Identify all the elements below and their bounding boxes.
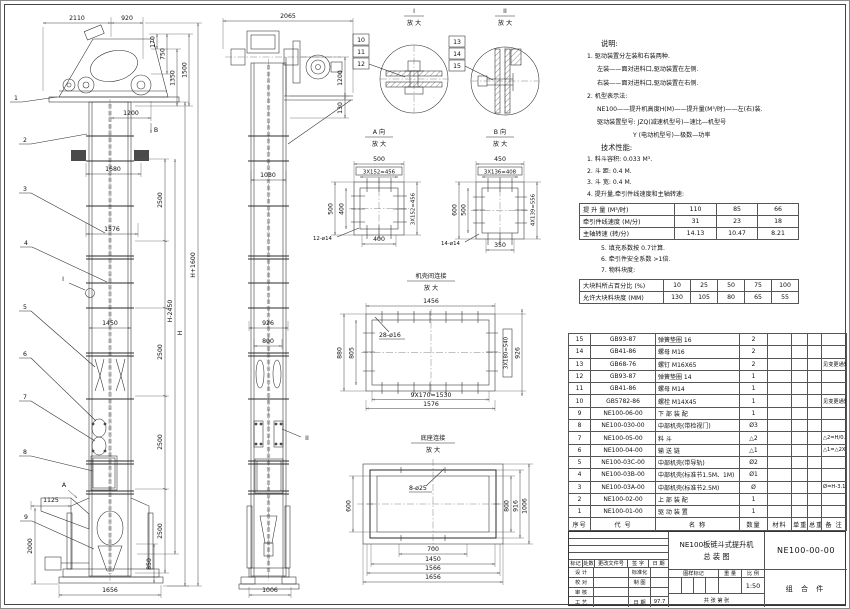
lift-table-label: 牵引件线速度 (M/分)	[580, 216, 675, 228]
stamp-box	[706, 578, 719, 594]
bom-cell	[822, 493, 847, 505]
title-block: 标记 处数 更改文件号 签 字 日 期 设 计 标准化 校 对 制 图 审 核 …	[568, 531, 846, 606]
bom-cell: 1	[740, 506, 768, 518]
base-r800: 800	[504, 500, 511, 512]
audit-extra	[629, 588, 651, 597]
bom-cell: 弹簧垫圈 16	[656, 334, 740, 346]
scale-value: 1:50	[742, 578, 765, 594]
balloon-1: 1	[14, 95, 18, 102]
bom-cell	[808, 506, 822, 518]
base-r1006: 1006	[522, 498, 529, 514]
stamp-label: 图样标记	[669, 570, 719, 578]
bom-cell	[768, 383, 792, 395]
lump-table-row: 大块料所占百分比 (%)10255075100	[580, 280, 799, 292]
tech-lines2: 5. 填充系数按 0.7计算.6. 牵引件安全系数 >1倍.7. 物料块度:	[601, 244, 850, 276]
bom-cell	[768, 358, 792, 370]
bom-cell: △2=H/0.2+5.75	[822, 432, 847, 444]
process-sign	[594, 597, 629, 607]
bom-cell: GB41-86	[591, 346, 656, 358]
dim-2000: 2000	[27, 538, 34, 554]
bom-cell: 2	[740, 358, 768, 370]
lift-table-row: 提 升 量 (M³/时)1108566	[580, 204, 799, 216]
bom-cell	[768, 493, 792, 505]
bom-row: 9NE100-06-00下 部 装 配1	[569, 407, 847, 419]
balloon-5: 5	[23, 304, 27, 311]
base-b1450: 1450	[425, 556, 441, 563]
bom-row: 4NE100-03B-00中部机壳(标准节1.5M、1M)Ø1	[569, 469, 847, 481]
bom-cell	[808, 456, 822, 468]
bom-cell	[768, 481, 792, 493]
bom-row: 10GB5782-86螺栓 M14X451见变更通知单	[569, 395, 847, 407]
bom-cell: 螺母 M14	[656, 383, 740, 395]
dim-800: 800	[262, 338, 274, 345]
dim-1680: 1680	[105, 166, 121, 173]
note-line: 驱动装置型号: JZQ(减速机型号)—速比—机型号	[597, 116, 849, 129]
bom-cell: 料 斗	[656, 432, 740, 444]
lump-table-value: 50	[718, 280, 745, 292]
bom-row: 12GB93-87弹簧垫圈 141	[569, 370, 847, 382]
drawing-number: NE100-00-00	[765, 532, 847, 570]
weight-value	[719, 578, 742, 594]
detail-i-title: I	[413, 8, 415, 15]
view-a-left2: 400	[339, 203, 346, 215]
lump-table-label: 允许大块料块度 (MM)	[580, 292, 664, 304]
bom-cell	[808, 420, 822, 432]
lump-table-value: 55	[772, 292, 799, 304]
view-a-sub: 放 大	[372, 140, 386, 148]
lift-table-value: 8.21	[758, 228, 799, 240]
detail-ii-sub: 放 大	[498, 19, 512, 27]
bom-cell: GB5782-86	[591, 395, 656, 407]
bom-cell: 1	[740, 370, 768, 382]
side-view: 2065 1200 130 1030 926 800 1006 II	[223, 13, 353, 598]
tech-line: 1. 料斗容积: 0.033 M³.	[587, 154, 849, 166]
bom-cell	[792, 469, 808, 481]
sheet-count: 共 张 第 张	[669, 594, 765, 607]
view-b-top2: 3X136=408	[484, 170, 517, 176]
bom-row: 5NE100-03C-00中部机壳(带导轨)Ø2	[569, 456, 847, 468]
bom-cell: NE100-03C-00	[591, 456, 656, 468]
dim-2110: 2110	[69, 15, 85, 22]
note-line: 左装——面对进料口,驱动装置在左侧.	[597, 63, 849, 76]
bom-cell	[792, 346, 808, 358]
mark-label: 标记	[569, 560, 583, 568]
bom-row: 15GB93-87弹簧垫圈 162	[569, 334, 847, 346]
view-a-holes: 12-ø14	[313, 236, 333, 242]
bom-cell: 驱 动 装 置	[656, 506, 740, 518]
base-holes: 8-ø25	[409, 485, 427, 492]
joint-right: 926	[515, 347, 522, 359]
bom-cell: Ø1	[740, 469, 768, 481]
bom-cell: Ø2	[740, 456, 768, 468]
bom-cell	[792, 456, 808, 468]
revision-row	[569, 532, 669, 539]
dim-1656: 1656	[102, 587, 118, 594]
view-a-left: 500	[328, 203, 335, 215]
bom-row: 13GB68-76螺钉 M16X652见变更通知单	[569, 358, 847, 370]
audit-sign	[594, 588, 629, 597]
bom-cell	[768, 346, 792, 358]
tech-line: 7. 物料块度:	[601, 266, 850, 277]
bom-cell	[808, 407, 822, 419]
view-a-title: A 向	[373, 128, 385, 136]
bom-row: 2NE100-02-00上 部 装 配1	[569, 493, 847, 505]
base-b1566: 1566	[425, 565, 441, 572]
bom-cell: 3	[569, 481, 591, 493]
dim-2500-d: 2500	[157, 523, 164, 539]
dim-h-plus: H+1600	[190, 252, 197, 278]
bom-cell	[808, 481, 822, 493]
marker-a: A	[62, 482, 67, 489]
bom-header: 代 号	[591, 518, 656, 530]
bom-row: 6NE100-04-00输 送 链△1△1=△2X4	[569, 444, 847, 456]
bom-cell	[792, 432, 808, 444]
balloon-2: 2	[23, 137, 27, 144]
bom-cell	[768, 456, 792, 468]
dim-926: 926	[262, 320, 274, 327]
bom-cell: 13	[569, 358, 591, 370]
dim-170: 170	[150, 36, 157, 48]
lump-table-value: 100	[772, 280, 799, 292]
bom-row: 1NE100-01-00驱 动 装 置1	[569, 506, 847, 518]
part-type: 组 合 件	[765, 570, 847, 607]
change-doc-label: 更改文件号	[595, 560, 628, 568]
lift-table-value: 66	[758, 204, 799, 216]
view-a-right: 3X152=456	[411, 192, 417, 225]
lift-table-value: 85	[717, 204, 758, 216]
base-left: 600	[346, 500, 353, 512]
bom-cell: 中部机壳(标准节2.5M)	[656, 481, 740, 493]
bom-cell: 10	[569, 395, 591, 407]
bom-cell	[792, 358, 808, 370]
audit-label: 审 核	[569, 588, 594, 597]
dim-h: H	[177, 330, 184, 335]
bom-cell	[822, 383, 847, 395]
front-view: 1 2 3 4 5 6 7 8 9 2110 920 170 750 1350 …	[10, 15, 202, 598]
balloon-12: 12	[357, 61, 365, 68]
view-b-top: 450	[494, 156, 506, 163]
bom-cell: NE100-04-00	[591, 444, 656, 456]
date-label: 日 期	[649, 560, 669, 568]
base-b1656: 1656	[425, 574, 441, 581]
bom-cell: 12	[569, 370, 591, 382]
note-line: Y (电动机型号)—极数—功率	[633, 129, 849, 142]
revision-row	[569, 539, 669, 546]
bom-cell: 2	[740, 334, 768, 346]
dim-1200: 1200	[123, 110, 139, 117]
lift-table-value: 14.13	[675, 228, 717, 240]
check-sign	[594, 578, 629, 588]
lift-table-value: 31	[675, 216, 717, 228]
marker-i: I	[62, 276, 64, 283]
count-label: 处数	[583, 560, 595, 568]
view-a-bottom: 400	[373, 236, 385, 243]
view-a-top2: 3X152=456	[363, 170, 396, 176]
dim-2500-a: 2500	[157, 192, 164, 208]
tech-lines: 1. 料斗容积: 0.033 M³.2. 斗 距: 0.4 M.3. 斗 宽: …	[587, 154, 849, 201]
bom-cell: 8	[569, 420, 591, 432]
bom-header: 名 称	[656, 518, 740, 530]
bom-cell	[792, 420, 808, 432]
drawing-sheet: 1 2 3 4 5 6 7 8 9 2110 920 170 750 1350 …	[0, 0, 850, 609]
bom-cell	[808, 358, 822, 370]
drawing-title: NE100板链斗式提升机 总 装 图	[669, 532, 765, 570]
bom-header: 单重	[792, 518, 808, 530]
marker-ii: II	[305, 435, 309, 442]
bom-header: 总重	[808, 518, 822, 530]
bom-cell	[822, 334, 847, 346]
bom-cell	[808, 395, 822, 407]
bom-cell: NE100-02-00	[591, 493, 656, 505]
base-sub: 放 大	[426, 446, 440, 454]
bom-cell	[808, 444, 822, 456]
bom-table: 15GB93-87弹簧垫圈 16214GB41-86螺母 M16213GB68-…	[568, 333, 847, 531]
tech-line: 3. 斗 宽: 0.4 M.	[587, 177, 849, 189]
revision-row	[569, 546, 669, 553]
dim-2500-b: 2500	[157, 344, 164, 360]
bom-row: 7NE100-05-00料 斗△2△2=H/0.2+5.75	[569, 432, 847, 444]
bom-cell: 螺母 M16	[656, 346, 740, 358]
drawing-canvas: 1 2 3 4 5 6 7 8 9 2110 920 170 750 1350 …	[1, 1, 566, 609]
bom-cell	[808, 334, 822, 346]
bom-cell	[822, 506, 847, 518]
bom-cell: GB41-86	[591, 383, 656, 395]
lump-table-value: 105	[691, 292, 718, 304]
date-value: 97.7	[651, 597, 669, 607]
notes-heading: 说明:	[601, 37, 849, 50]
view-b-sub: 放 大	[493, 140, 507, 148]
bom-cell: 输 送 链	[656, 444, 740, 456]
bom-cell	[822, 469, 847, 481]
lump-table-value: 25	[691, 280, 718, 292]
bom-cell: Ø=H-3.15/2.5	[822, 481, 847, 493]
view-b-left2: 500	[461, 204, 468, 216]
date2-label: 日 期	[629, 597, 651, 607]
bom-cell	[808, 383, 822, 395]
lift-table-value: 10.47	[717, 228, 758, 240]
bom-cell	[822, 346, 847, 358]
bom-cell: △2	[740, 432, 768, 444]
bom-cell: GB68-76	[591, 358, 656, 370]
note-line: 右装——面对进料口,驱动装置在右侧.	[597, 77, 849, 90]
casing-joint-view: 机壳间连接 放 大 1456 28-ø16 880 805 3X180=540 …	[337, 272, 527, 411]
balloon-14: 14	[453, 51, 461, 58]
lift-table-value: 110	[675, 204, 717, 216]
dim-920: 920	[121, 15, 133, 22]
view-a-top: 500	[373, 156, 385, 163]
bom-cell	[768, 370, 792, 382]
stamp-box	[669, 578, 682, 594]
view-b: B 向 放 大 450 3X136=408 600 500 4X139=556 …	[441, 128, 541, 253]
standard-sign	[651, 568, 669, 578]
balloon-3: 3	[23, 186, 27, 193]
bom-cell	[792, 493, 808, 505]
revision-row	[569, 553, 669, 560]
lift-table-label: 提 升 量 (M³/时)	[580, 204, 675, 216]
bom-cell: 1	[569, 506, 591, 518]
weight-label: 重 量	[719, 570, 742, 578]
bom-cell: 4	[569, 469, 591, 481]
bom-cell: 1	[740, 383, 768, 395]
bom-cell	[768, 334, 792, 346]
dim-130: 130	[337, 102, 344, 114]
bom-header: 序号	[569, 518, 591, 530]
design-sign	[594, 568, 629, 578]
lump-table-value: 75	[745, 280, 772, 292]
lift-table-row: 主轴转速 (转/分)14.1310.478.21	[580, 228, 799, 240]
bom-cell	[792, 370, 808, 382]
bom-cell: 上 部 装 配	[656, 493, 740, 505]
lift-table-label: 主轴转速 (转/分)	[580, 228, 675, 240]
joint-holes: 28-ø16	[379, 332, 401, 339]
balloon-15: 15	[453, 63, 461, 70]
bom-cell	[808, 469, 822, 481]
bom-header-row: 序号代 号名 称数量材料单重总重备 注	[569, 518, 847, 530]
standard-label: 标准化	[629, 568, 651, 578]
dim-side-1200: 1200	[337, 70, 344, 86]
bom-cell	[768, 395, 792, 407]
sheet-name: 总 装 图	[703, 551, 729, 563]
scale-label: 比 例	[742, 570, 765, 578]
lump-table-label: 大块料所占百分比 (%)	[580, 280, 664, 292]
lump-table-value: 65	[745, 292, 772, 304]
bom-cell	[768, 469, 792, 481]
notes-lines: 1. 驱动装置分左装和右装两种.左装——面对进料口,驱动装置在左侧.右装——面对…	[587, 50, 849, 142]
bom-cell	[822, 456, 847, 468]
bom-cell	[808, 346, 822, 358]
lift-table-value: 23	[717, 216, 758, 228]
bom-cell: 弹簧垫圈 14	[656, 370, 740, 382]
check-label: 校 对	[569, 578, 594, 588]
view-b-title: B 向	[494, 128, 506, 136]
bom-cell: NE100-03A-00	[591, 481, 656, 493]
bom-cell: Ø	[740, 481, 768, 493]
lift-table: 提 升 量 (M³/时)1108566牵引件线速度 (M/分)312318主轴转…	[579, 203, 799, 240]
draft-label: 制 图	[629, 578, 651, 588]
balloon-9: 9	[24, 514, 28, 521]
lump-table-value: 130	[664, 292, 691, 304]
bom-cell: 2	[740, 346, 768, 358]
lump-table: 大块料所占百分比 (%)10255075100允许大块料块度 (MM)13010…	[579, 279, 799, 304]
balloon-13: 13	[453, 39, 461, 46]
detail-i-sub: 放 大	[407, 19, 421, 27]
tech-block: 技术性能: 1. 料斗容积: 0.033 M³.2. 斗 距: 0.4 M.3.…	[587, 142, 849, 201]
joint-title: 机壳间连接	[416, 272, 447, 280]
bom-cell: 1	[740, 395, 768, 407]
note-line: NE100——提升机高度H(M)——提升量(M³/时)——左(右)装.	[597, 103, 849, 116]
balloon-4: 4	[24, 240, 28, 247]
bom-cell	[822, 407, 847, 419]
tech-line: 6. 牵引件安全系数 >1倍.	[601, 255, 850, 266]
bom-cell: 中部机壳(带检视门)	[656, 420, 740, 432]
base-title: 底座连接	[421, 434, 446, 442]
detail-i: I 放 大 10 11 12	[353, 8, 448, 113]
bom-cell: NE100-030-00	[591, 420, 656, 432]
bom-cell	[792, 444, 808, 456]
bom-cell: GB93-87	[591, 334, 656, 346]
bom-cell	[808, 370, 822, 382]
bom-row: 14GB41-86螺母 M162	[569, 346, 847, 358]
bom-cell: NE100-03B-00	[591, 469, 656, 481]
view-a: A 向 放 大 500 3X152=456 500 400 3X152=456 …	[313, 128, 421, 247]
bom-cell: 11	[569, 383, 591, 395]
bom-cell: 见变更通知单	[822, 395, 847, 407]
balloon-10: 10	[357, 37, 365, 44]
base-view: 底座连接 放 大 8-ø25 600 800 916 1006 700 1450…	[346, 434, 534, 585]
bom-cell	[792, 407, 808, 419]
bom-cell: 6	[569, 444, 591, 456]
bom-row: 11GB41-86螺母 M141	[569, 383, 847, 395]
bom-cell	[768, 506, 792, 518]
bom-cell	[768, 420, 792, 432]
dim-1350: 1350	[170, 70, 177, 86]
tech-line: 5. 填充系数按 0.7计算.	[601, 244, 850, 255]
dim-2500-c: 2500	[157, 434, 164, 450]
lump-table-row: 允许大块料块度 (MM)130105806555	[580, 292, 799, 304]
dim-1576: 1576	[104, 226, 120, 233]
bom-cell: 14	[569, 346, 591, 358]
bom-cell	[768, 407, 792, 419]
process-label: 工 艺	[569, 597, 594, 607]
audit-extra2	[651, 588, 669, 597]
balloon-11: 11	[357, 49, 365, 56]
bom-cell	[792, 383, 808, 395]
bom-cell	[808, 493, 822, 505]
tech-line: 2. 斗 距: 0.4 M.	[587, 166, 849, 178]
detail-ii: II 放 大 13 14 15	[449, 8, 539, 115]
bom-cell: 螺钉 M16X65	[656, 358, 740, 370]
notes-block: 说明: 1. 驱动装置分左装和右装两种.左装——面对进料口,驱动装置在左侧.右装…	[587, 37, 849, 143]
joint-left2: 805	[349, 347, 356, 359]
bom-header: 数量	[740, 518, 768, 530]
joint-left: 880	[337, 347, 344, 359]
sign-label: 签 字	[628, 560, 649, 568]
dim-750: 750	[160, 48, 167, 60]
stamp-box	[694, 578, 706, 594]
base-b700: 700	[427, 546, 439, 553]
bom-header: 备 注	[822, 518, 847, 530]
bom-cell: 中部机壳(标准节1.5M、1M)	[656, 469, 740, 481]
note-line: 2. 机型表示法:	[587, 90, 849, 103]
dim-850: 850	[146, 558, 153, 570]
dim-2065: 2065	[280, 13, 296, 20]
dim-1450: 1450	[102, 320, 118, 327]
bom-cell	[768, 432, 792, 444]
dim-1006: 1006	[262, 587, 278, 594]
bom-cell: 1	[740, 407, 768, 419]
dim-h-minus: H-2450	[167, 300, 174, 323]
bom-cell: GB93-87	[591, 370, 656, 382]
bom-cell	[822, 420, 847, 432]
joint-bottom: 9X170=1530	[411, 392, 452, 399]
design-label: 设 计	[569, 568, 594, 578]
bom-cell	[822, 370, 847, 382]
dim-1125: 1125	[43, 497, 59, 504]
bom-cell: 9	[569, 407, 591, 419]
bom-cell: △1=△2X4	[822, 444, 847, 456]
bom-cell: 2	[569, 493, 591, 505]
bom-cell	[768, 444, 792, 456]
bom-cell: 7	[569, 432, 591, 444]
view-b-bottom: 350	[494, 242, 506, 249]
dim-1030: 1030	[260, 172, 276, 179]
bom-cell: 中部机壳(带导轨)	[656, 456, 740, 468]
joint-right2: 3X180=540	[504, 336, 510, 369]
lift-table-value: 18	[758, 216, 799, 228]
product-name: NE100板链斗式提升机	[680, 539, 754, 551]
bom-cell	[792, 395, 808, 407]
bom-cell: NE100-05-00	[591, 432, 656, 444]
